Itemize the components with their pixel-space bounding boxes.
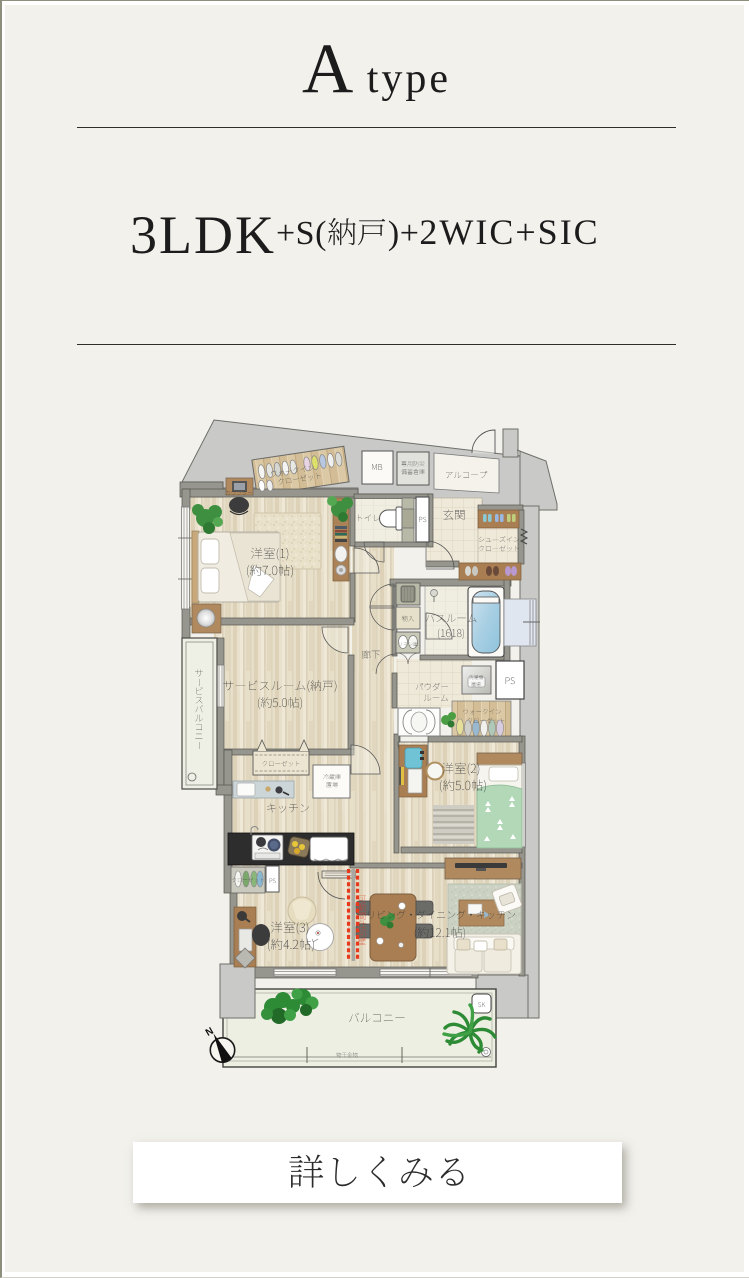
svg-text:N: N (204, 1026, 216, 1039)
